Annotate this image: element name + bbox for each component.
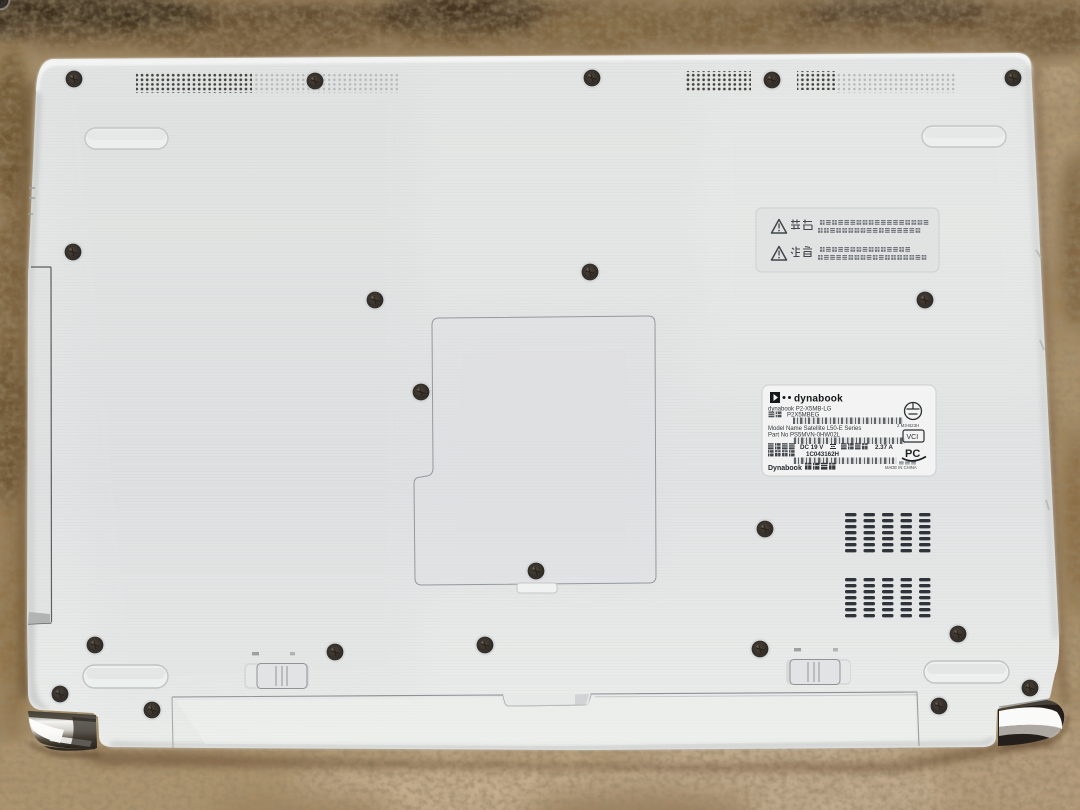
svg-text:Model Name Satellite L50-E Se: Model Name Satellite L50-E Series: [768, 426, 861, 432]
svg-text:PC: PC: [905, 448, 920, 460]
svg-text:dynabook: dynabook: [794, 394, 843, 405]
svg-text:2 M3-B23H: 2 M3-B23H: [897, 423, 919, 428]
svg-text:Dynabook: Dynabook: [768, 465, 802, 472]
svg-text:MADE IN CHINA: MADE IN CHINA: [885, 465, 917, 470]
svg-text:1C043162H: 1C043162H: [806, 451, 840, 458]
svg-text:DC 19 V: DC 19 V: [800, 444, 824, 451]
svg-text:2.37 A: 2.37 A: [875, 444, 894, 451]
svg-text:VCI: VCI: [907, 434, 919, 441]
